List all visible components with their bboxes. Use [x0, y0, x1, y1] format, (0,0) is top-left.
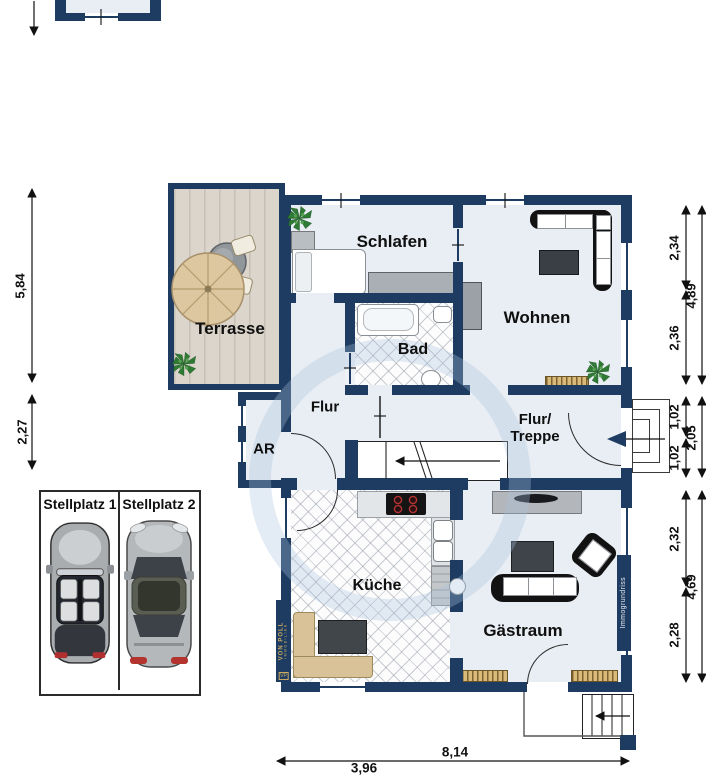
wall-segment — [621, 290, 632, 320]
room-label-flur: Flur — [311, 398, 339, 415]
doorway — [281, 432, 291, 478]
top-room-floor — [55, 0, 161, 14]
wall-segment — [621, 367, 632, 408]
room-label-terrasse: Terrasse — [195, 319, 265, 339]
wall-segment — [345, 385, 368, 395]
interior-stairs — [356, 441, 508, 481]
wall-segment — [281, 293, 296, 303]
floor-plan: VON POLL IMMOBILIEN VP Immogrundriss Ste… — [0, 0, 706, 775]
room-label-wohnen: Wohnen — [504, 308, 571, 328]
wall-segment — [334, 293, 463, 303]
wall-segment — [621, 468, 632, 508]
window — [238, 442, 246, 462]
parking-divider — [118, 492, 120, 690]
kitchen-sink — [433, 541, 453, 562]
parking-area: Stellplatz 1 Stellplatz 2 — [39, 490, 201, 696]
window — [238, 406, 246, 426]
dim-label-bottom-partial: 3,96 — [351, 761, 377, 775]
vonpoll-sub: IMMOBILIEN — [285, 622, 289, 661]
window — [281, 498, 291, 538]
sofa-cushion — [503, 577, 529, 596]
wall-segment — [621, 195, 632, 243]
entry-doorway — [621, 408, 632, 468]
kitchen-table — [318, 620, 367, 654]
wall-segment — [281, 682, 320, 692]
room-label-ar: AR — [253, 440, 275, 457]
wall-segment — [55, 13, 85, 21]
tv-table — [539, 250, 579, 275]
room-label-kueche: Küche — [353, 577, 402, 595]
tv-flat — [514, 494, 558, 503]
window — [85, 13, 118, 21]
parking-spot-2-label: Stellplatz 2 — [119, 496, 199, 512]
wall-segment — [524, 195, 632, 205]
wall-segment — [238, 392, 291, 400]
sofa-cushion — [553, 577, 577, 596]
wall-segment — [500, 478, 621, 490]
window — [320, 682, 365, 692]
wall-segment — [337, 478, 468, 490]
wall-segment — [568, 682, 632, 692]
dim-label-bottom-total: 8,14 — [442, 745, 468, 760]
room-label-gaestraum: Gästraum — [483, 621, 562, 641]
dim-label-gaestraum-lower: 2,28 — [667, 622, 682, 647]
wall-segment — [453, 303, 463, 385]
wall-segment — [118, 13, 161, 21]
parasol-icon — [170, 251, 246, 327]
room-label-flur-treppe: Flur/ Treppe — [510, 411, 559, 446]
dim-label-wohnen-upper: 2,34 — [667, 235, 682, 260]
dim-label-wohnen-total: 4,89 — [684, 283, 699, 308]
room-label-schlafen: Schlafen — [357, 232, 428, 252]
wall-segment — [360, 195, 486, 205]
wall-segment — [281, 478, 297, 490]
vonpoll-monogram: VP — [278, 672, 289, 680]
sofa-cushion — [596, 258, 611, 285]
dim-label-gaestraum-total: 4,69 — [684, 574, 699, 599]
convertible-car-icon — [46, 518, 114, 668]
dim-label-entry-upper: 1,02 — [667, 404, 682, 429]
bathtub-inner — [363, 308, 414, 331]
wall-segment — [450, 490, 463, 520]
coffee-table — [511, 541, 554, 572]
corner-bench — [293, 656, 373, 678]
dim-label-entry-lower: 1,02 — [667, 445, 682, 470]
sideboard — [368, 272, 458, 294]
wall-segment — [620, 735, 636, 750]
vonpoll-badge: VON POLL IMMOBILIEN VP — [276, 600, 291, 682]
window — [322, 195, 360, 205]
room-label-bad: Bad — [398, 341, 428, 359]
radiator — [571, 670, 618, 682]
pillow — [295, 252, 312, 292]
exterior-stairs — [582, 694, 634, 739]
sofa-cushion — [528, 577, 554, 596]
sofa-cushion — [596, 215, 611, 230]
wardrobe — [462, 282, 482, 330]
watermark-badge: Immogrundriss — [617, 555, 631, 651]
parking-spot-1-label: Stellplatz 1 — [41, 496, 119, 512]
column — [449, 578, 466, 595]
wall-segment — [392, 385, 470, 395]
stove-burners — [386, 493, 426, 515]
watermark-text: Immogrundriss — [620, 577, 627, 629]
radiator — [461, 670, 508, 682]
wall-segment — [365, 682, 527, 692]
window — [621, 508, 632, 548]
wall-segment — [345, 303, 355, 352]
doorway — [345, 352, 355, 385]
wall-segment — [450, 658, 463, 682]
wall-segment — [453, 205, 463, 228]
sofa-cushion — [596, 231, 611, 259]
window — [621, 320, 632, 367]
entry-steps — [632, 419, 650, 453]
washbasin — [433, 306, 452, 323]
window — [486, 195, 524, 205]
wall-segment — [453, 262, 463, 293]
doorway — [296, 293, 334, 303]
wall-segment — [508, 385, 621, 395]
dim-label-gaestraum-upper: 2,32 — [667, 526, 682, 551]
sofa-cushion — [537, 214, 566, 229]
coupe-car-icon — [124, 516, 194, 672]
dim-label-entry-total: 2,05 — [684, 425, 699, 450]
sofa-cushion — [565, 214, 593, 229]
dim-label-wohnen-lower: 2,36 — [667, 325, 682, 350]
dim-label-terrace-height: 5,84 — [13, 273, 28, 298]
window — [621, 243, 632, 290]
kitchen-sink — [433, 520, 453, 541]
dim-label-ar-height: 2,27 — [15, 419, 30, 444]
